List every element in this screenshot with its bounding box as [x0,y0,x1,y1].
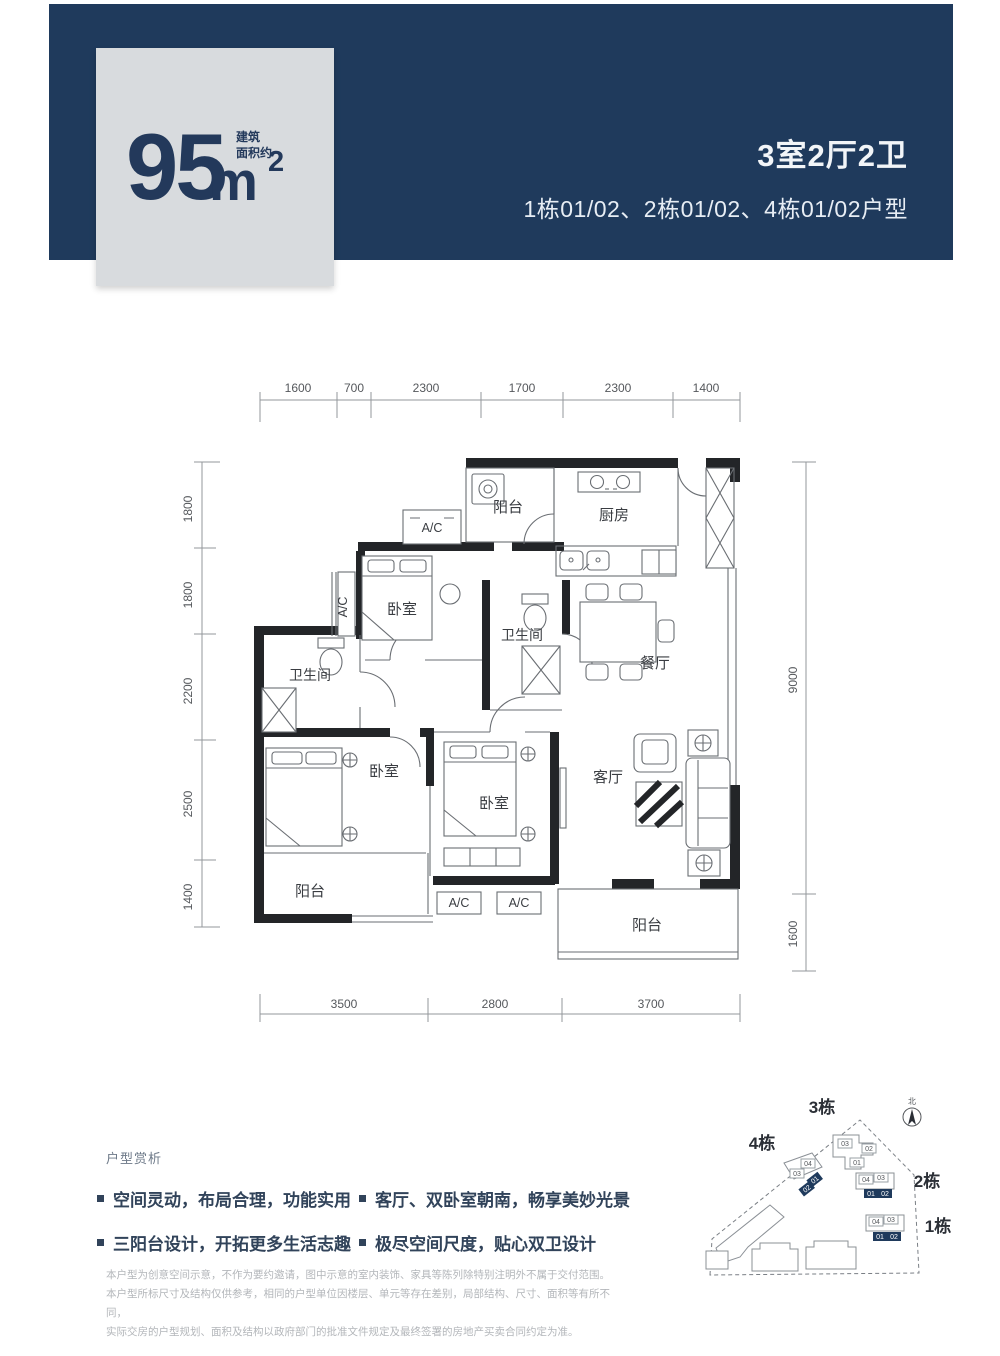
dim-right-2: 1600 [786,920,800,947]
bullet-marker-icon [359,1195,366,1202]
fridge-icon [642,550,676,574]
room-label-bedroom-1: 卧室 [387,601,417,618]
unit-badge: 04 [862,1177,870,1184]
room-label-bedroom-3: 卧室 [479,795,509,812]
header-right: 3室2厅2卫 1栋01/02、2栋01/02、4栋01/02户型 [523,130,908,224]
toilet-icon [522,594,548,631]
dim-bottom-2: 2800 [482,997,509,1011]
room-label-dining: 餐厅 [640,655,670,672]
dim-top-4: 1700 [509,381,536,395]
analysis-bullets: 空间灵动，布局合理，功能实用 三阳台设计，开拓更多生活志趣 客厅、双卧室朝南，畅… [97,1176,737,1264]
kitchen-sink-icon [560,551,609,570]
furniture [262,472,730,914]
area-note-line1: 建筑 [236,130,260,144]
bullet-text: 极尽空间尺度，贴心双卫设计 [375,1230,596,1255]
unit-badge: 03 [877,1175,885,1182]
disclaimer: 本户型为创意空间示意，不作为要约邀请，图中示意的室内装饰、家具等陈列除特别注明外… [106,1266,626,1342]
room-label-balcony-left: 阳台 [295,883,325,900]
analysis-title: 户型赏析 [106,1148,162,1167]
building-footprints [706,1135,904,1271]
stove-icon [578,472,640,492]
dim-top-2: 700 [344,381,364,395]
shower-icon [262,688,296,732]
ac-label-bottom-2: A/C [509,896,530,910]
floorplan-drawing: 1600 700 2300 1700 2300 1400 3500 2800 3… [150,362,850,1072]
room-label-living: 客厅 [593,769,623,786]
bullet-item: 客厅、双卧室朝南，畅享美妙光景 [359,1176,737,1220]
dim-right-1: 9000 [786,666,800,693]
dim-top-5: 2300 [605,381,632,395]
dim-top-6: 1400 [693,381,720,395]
bullet-text: 客厅、双卧室朝南，畅享美妙光景 [375,1186,630,1211]
apartment-type: 3室2厅2卫 [523,130,908,175]
room-label-bathroom-interior: 卫生间 [501,627,543,643]
room-label-bathroom-left: 卫生间 [289,667,331,683]
unit-badge: 03 [887,1217,895,1224]
room-label-balcony-top: 阳台 [493,499,523,516]
building-label-4: 4栋 [749,1133,775,1153]
unit-badge-selected: 01 [876,1234,884,1241]
dim-bottom-3: 3700 [638,997,665,1011]
unit-badge: 01 [853,1160,861,1167]
unit-badge-selected: 02 [890,1234,898,1241]
side-table-icon [688,850,720,876]
partitions-and-doors [264,468,738,959]
north-compass-icon: 北 [903,1097,921,1126]
unit-badge: 04 [804,1161,812,1168]
bullet-marker-icon [97,1195,104,1202]
side-table-icon [688,730,718,756]
ac-label-bottom-1: A/C [449,896,470,910]
dim-bottom-1: 3500 [331,997,358,1011]
building-label-3: 3栋 [809,1097,835,1117]
building-label-2: 2栋 [914,1171,940,1191]
unit-badge: 03 [841,1141,849,1148]
header-band: 95 m 2 建筑 面积约 3室2厅2卫 1栋01/02、2栋01/02、4栋0… [49,4,953,260]
area-card: 95 m 2 建筑 面积约 [96,48,334,286]
dim-top-1: 1600 [285,381,312,395]
room-label-kitchen: 厨房 [599,507,629,524]
shower-icon [522,646,560,694]
rug-icon [636,782,682,826]
bullet-text: 空间灵动，布局合理，功能实用 [113,1186,351,1211]
ac-label-top: A/C [422,521,443,535]
disclaimer-line: 本户型为创意空间示意，不作为要约邀请，图中示意的室内装饰、家具等陈列除特别注明外… [106,1266,626,1285]
dim-left-5: 1400 [181,883,195,910]
tv-icon [560,768,566,828]
dim-left-4: 2500 [181,790,195,817]
dim-left-3: 2200 [181,677,195,704]
floorplan-page: 95 m 2 建筑 面积约 3室2厅2卫 1栋01/02、2栋01/02、4栋0… [0,0,1000,1356]
sofa-icon [686,758,730,848]
ac-label-left: A/C [336,597,350,618]
disclaimer-line: 实际交房的户型规划、面积及结构以政府部门的批准文件规定及最终签署的房地产买卖合同… [106,1323,626,1342]
site-plan: 北 03 02 01 04 03 04 03 04 03 [690,1083,970,1298]
room-label-bedroom-2: 卧室 [369,763,399,780]
area-note: 建筑 面积约 [236,130,272,161]
disclaimer-line: 本户型所标尺寸及结构仅供参考，相同的户型单位因楼层、单元等存在差别，局部结构、尺… [106,1285,626,1323]
armchair-icon [634,734,676,772]
unit-badge-selected: 01 [867,1191,875,1198]
building-label-1: 1栋 [925,1216,951,1236]
bullet-item: 三阳台设计，开拓更多生活志趣 [97,1220,359,1264]
north-label: 北 [908,1097,916,1106]
bullet-marker-icon [359,1239,366,1246]
bullet-item: 空间灵动，布局合理，功能实用 [97,1176,359,1220]
unit-badge: 02 [865,1146,873,1153]
dim-left-2: 1800 [181,581,195,608]
bullet-marker-icon [97,1239,104,1246]
area-note-line2: 面积约 [236,146,272,160]
unit-badge: 04 [872,1219,880,1226]
unit-badge-selected: 02 [881,1191,889,1198]
bullet-item: 极尽空间尺度，贴心双卫设计 [359,1220,737,1264]
unit-badge: 03 [793,1171,801,1178]
room-label-balcony-bottom: 阳台 [632,917,662,934]
bullet-text: 三阳台设计，开拓更多生活志趣 [113,1230,351,1255]
bed-icon [362,556,460,640]
bed-icon [266,748,357,846]
apartment-units: 1栋01/02、2栋01/02、4栋01/02户型 [523,190,908,224]
dim-left-1: 1800 [181,495,195,522]
area-unit: m [209,154,258,209]
dim-top-3: 2300 [413,381,440,395]
room-labels: 阳台 厨房 卧室 卫生间 餐厅 卫生间 卧室 卧室 客厅 阳台 阳台 A/C A… [289,499,670,934]
